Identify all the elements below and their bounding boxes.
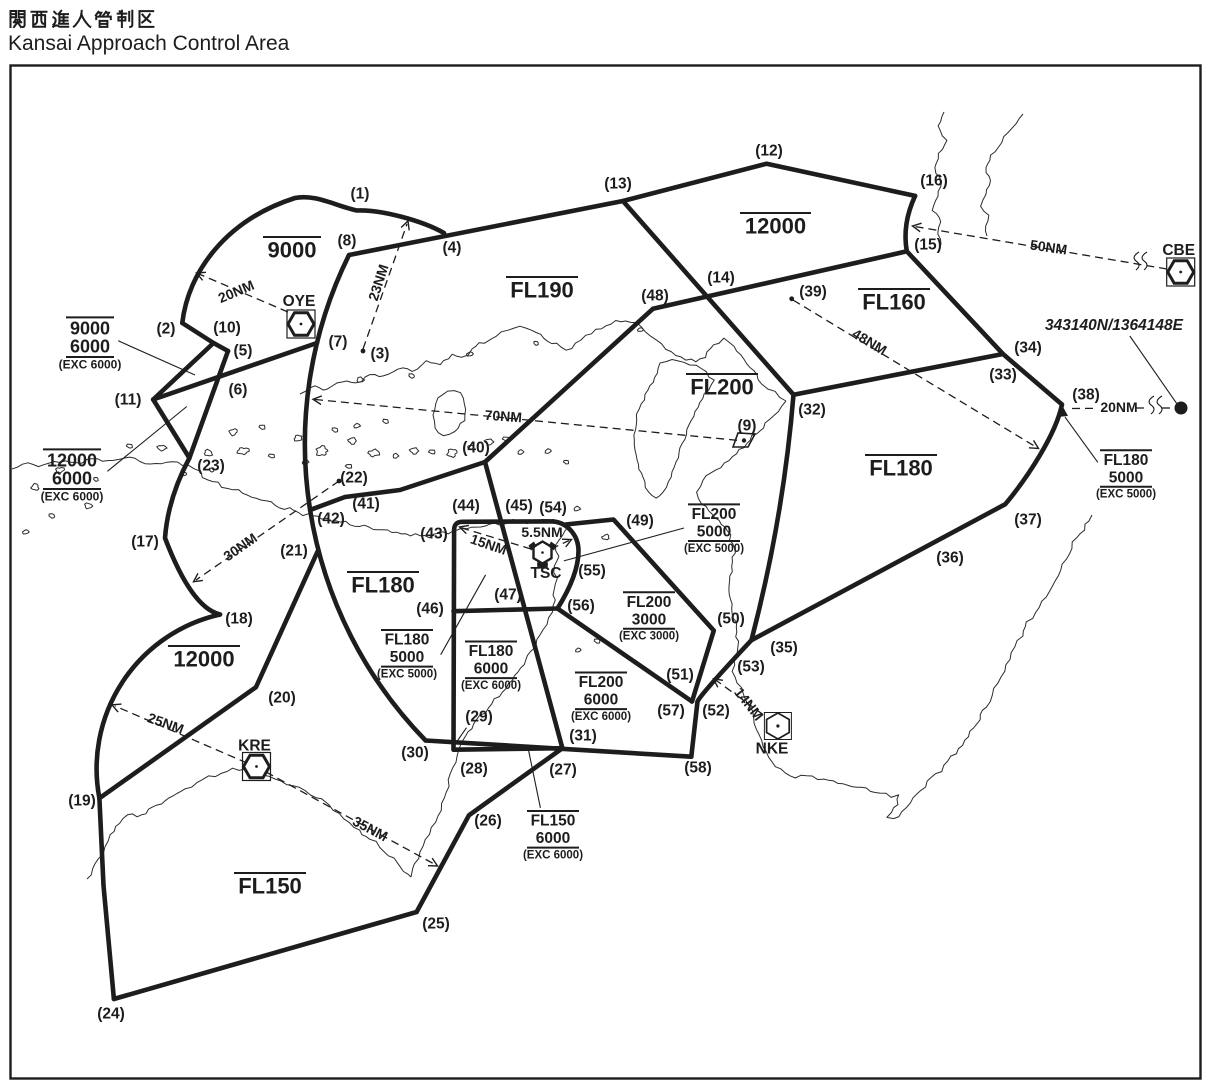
svg-text:(36): (36) bbox=[936, 550, 964, 567]
svg-text:(11): (11) bbox=[115, 392, 142, 409]
svg-text:(4): (4) bbox=[443, 240, 462, 257]
svg-text:(25): (25) bbox=[422, 916, 450, 933]
svg-text:6000: 6000 bbox=[536, 830, 570, 847]
svg-text:(37): (37) bbox=[1014, 512, 1042, 529]
svg-text:6000: 6000 bbox=[474, 661, 508, 678]
svg-text:20NM: 20NM bbox=[1100, 399, 1137, 415]
svg-text:(EXC 6000): (EXC 6000) bbox=[41, 489, 104, 503]
svg-text:(28): (28) bbox=[460, 761, 488, 778]
svg-text:(49): (49) bbox=[626, 513, 654, 530]
svg-text:5.5NM: 5.5NM bbox=[521, 524, 562, 540]
svg-text:FL180: FL180 bbox=[351, 572, 415, 597]
svg-text:6000: 6000 bbox=[52, 469, 92, 489]
svg-text:3000: 3000 bbox=[632, 611, 666, 628]
svg-text:5000: 5000 bbox=[390, 649, 424, 666]
svg-text:9000: 9000 bbox=[70, 319, 110, 339]
svg-text:(2): (2) bbox=[157, 321, 176, 338]
svg-text:FL200: FL200 bbox=[579, 674, 624, 691]
svg-text:(13): (13) bbox=[604, 176, 632, 193]
svg-text:(EXC 6000): (EXC 6000) bbox=[59, 357, 122, 371]
svg-text:(7): (7) bbox=[329, 334, 348, 351]
svg-text:(52): (52) bbox=[702, 703, 730, 720]
svg-text:(1): (1) bbox=[351, 186, 370, 203]
svg-text:(EXC 6000): (EXC 6000) bbox=[461, 680, 521, 692]
svg-text:TSC: TSC bbox=[531, 565, 562, 582]
svg-text:(53): (53) bbox=[737, 659, 765, 676]
svg-text:(10): (10) bbox=[213, 320, 241, 337]
svg-text:KRE: KRE bbox=[238, 738, 271, 755]
svg-text:(9): (9) bbox=[738, 418, 757, 435]
svg-text:9000: 9000 bbox=[268, 237, 317, 262]
svg-text:(20): (20) bbox=[268, 690, 296, 707]
svg-text:OYE: OYE bbox=[283, 293, 316, 310]
svg-text:(6): (6) bbox=[229, 382, 248, 399]
svg-text:(3): (3) bbox=[371, 346, 390, 363]
svg-text:70NM: 70NM bbox=[484, 407, 522, 426]
svg-text:(33): (33) bbox=[989, 367, 1017, 384]
svg-text:(EXC 3000): (EXC 3000) bbox=[619, 631, 679, 643]
svg-text:FL180: FL180 bbox=[469, 643, 514, 660]
svg-text:(18): (18) bbox=[225, 611, 253, 628]
svg-text:(47): (47) bbox=[494, 587, 522, 604]
svg-text:(30): (30) bbox=[401, 745, 429, 762]
svg-text:FL200: FL200 bbox=[627, 594, 672, 611]
svg-text:(23): (23) bbox=[197, 458, 225, 475]
svg-text:30NM: 30NM bbox=[220, 530, 260, 565]
svg-text:25NM: 25NM bbox=[145, 709, 186, 737]
svg-text:343140N/1364148E: 343140N/1364148E bbox=[1045, 317, 1184, 334]
svg-text:(39): (39) bbox=[799, 284, 827, 301]
svg-text:23NM: 23NM bbox=[365, 262, 392, 302]
svg-text:FL200: FL200 bbox=[690, 374, 754, 399]
svg-text:(31): (31) bbox=[569, 728, 597, 745]
svg-text:(14): (14) bbox=[707, 270, 735, 287]
svg-text:(56): (56) bbox=[567, 598, 595, 615]
svg-text:(24): (24) bbox=[97, 1006, 125, 1023]
svg-text:(15): (15) bbox=[914, 237, 942, 254]
svg-text:FL180: FL180 bbox=[385, 632, 430, 649]
svg-text:(50): (50) bbox=[717, 611, 745, 628]
svg-text:(44): (44) bbox=[452, 498, 480, 515]
svg-text:(35): (35) bbox=[770, 640, 798, 657]
svg-text:(EXC 5000): (EXC 5000) bbox=[1096, 489, 1156, 501]
svg-text:20NM: 20NM bbox=[216, 277, 257, 306]
svg-text:(29): (29) bbox=[465, 709, 493, 726]
svg-text:(26): (26) bbox=[474, 813, 502, 830]
svg-text:5000: 5000 bbox=[697, 524, 731, 541]
svg-text:(57): (57) bbox=[657, 703, 685, 720]
svg-text:(46): (46) bbox=[416, 601, 444, 618]
svg-text:(EXC 5000): (EXC 5000) bbox=[377, 669, 437, 681]
svg-text:(8): (8) bbox=[338, 233, 357, 250]
svg-text:(12): (12) bbox=[755, 143, 783, 160]
svg-text:(43): (43) bbox=[420, 526, 448, 543]
svg-text:(EXC 5000): (EXC 5000) bbox=[684, 543, 744, 555]
svg-text:(34): (34) bbox=[1014, 340, 1042, 357]
svg-text:NKE: NKE bbox=[756, 741, 789, 758]
svg-text:FL180: FL180 bbox=[869, 455, 933, 480]
svg-text:48NM: 48NM bbox=[849, 325, 889, 358]
svg-text:(17): (17) bbox=[131, 534, 159, 551]
svg-text:(EXC 6000): (EXC 6000) bbox=[571, 711, 631, 723]
svg-text:(55): (55) bbox=[578, 563, 606, 580]
svg-text:(21): (21) bbox=[280, 543, 308, 560]
svg-text:12000: 12000 bbox=[47, 451, 97, 471]
svg-text:(42): (42) bbox=[317, 511, 345, 528]
svg-text:(22): (22) bbox=[340, 470, 368, 487]
svg-text:6000: 6000 bbox=[584, 692, 618, 709]
svg-text:(19): (19) bbox=[68, 793, 96, 810]
svg-text:(48): (48) bbox=[641, 288, 669, 305]
svg-text:(EXC 6000): (EXC 6000) bbox=[523, 850, 583, 862]
svg-text:(58): (58) bbox=[684, 760, 712, 777]
svg-text:(40): (40) bbox=[462, 440, 490, 457]
svg-text:6000: 6000 bbox=[70, 337, 110, 357]
svg-text:FL150: FL150 bbox=[531, 813, 576, 830]
svg-text:14NM: 14NM bbox=[731, 684, 767, 723]
svg-text:(41): (41) bbox=[352, 496, 380, 513]
svg-text:FL150: FL150 bbox=[238, 873, 302, 898]
svg-text:FL190: FL190 bbox=[510, 277, 574, 302]
svg-text:(32): (32) bbox=[798, 402, 826, 419]
svg-text:5000: 5000 bbox=[1109, 469, 1143, 486]
svg-text:12000: 12000 bbox=[745, 213, 806, 238]
svg-text:(54): (54) bbox=[539, 500, 567, 517]
svg-text:(27): (27) bbox=[549, 762, 577, 779]
svg-text:FL180: FL180 bbox=[1104, 452, 1149, 469]
svg-text:Kansai Approach Control Area: Kansai Approach Control Area bbox=[8, 32, 290, 55]
svg-text:12000: 12000 bbox=[173, 646, 234, 671]
svg-text:(51): (51) bbox=[666, 667, 694, 684]
svg-text:(38): (38) bbox=[1072, 387, 1100, 404]
svg-text:(16): (16) bbox=[920, 173, 948, 190]
svg-text:FL200: FL200 bbox=[692, 506, 737, 523]
svg-text:(45): (45) bbox=[505, 498, 533, 515]
svg-text:(5): (5) bbox=[234, 343, 253, 360]
svg-text:50NM: 50NM bbox=[1029, 237, 1068, 258]
svg-text:CBE: CBE bbox=[1162, 242, 1195, 259]
svg-text:FL160: FL160 bbox=[862, 289, 926, 314]
